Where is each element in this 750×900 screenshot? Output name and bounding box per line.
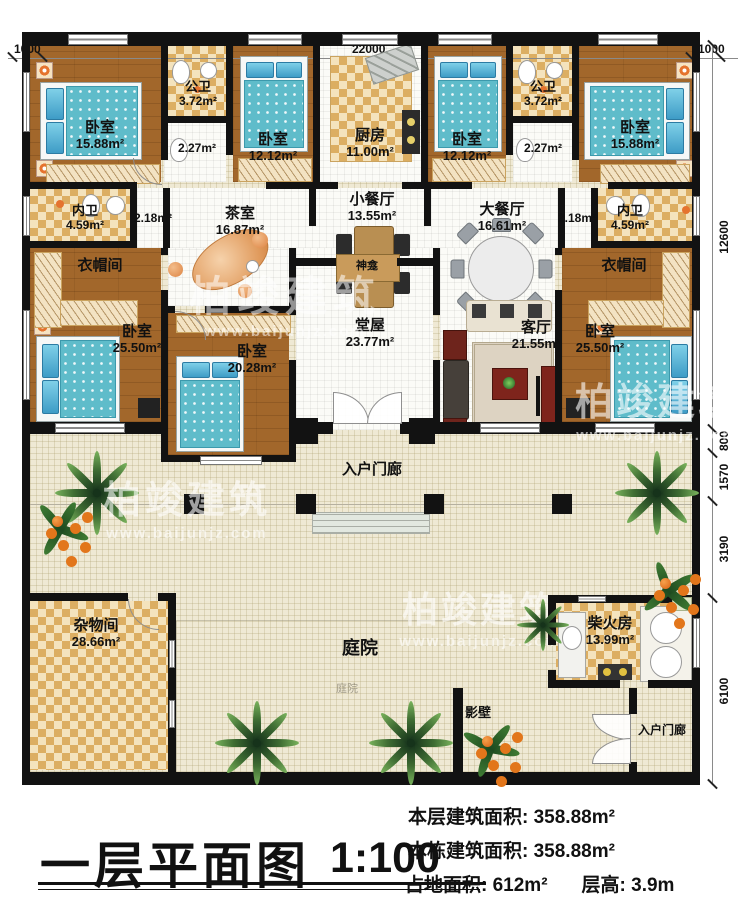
room-label-hall-l: 2.18m²: [134, 212, 172, 225]
closet-rack: [34, 252, 62, 328]
wall: [266, 182, 313, 189]
room-label-tea: 茶室16.87m²: [216, 206, 264, 237]
room-label-living: 客厅21.55m²: [512, 320, 560, 351]
burner: [603, 668, 611, 676]
dimension-value: 12600: [717, 207, 731, 267]
pillow: [666, 88, 684, 120]
sofa-pillow: [528, 304, 542, 318]
room-label-kitchen: 厨房11.00m²: [346, 128, 394, 159]
room-label-hall-r: 2.18m²: [558, 212, 596, 225]
window: [598, 34, 658, 45]
wall: [648, 680, 692, 688]
plant-pot: [503, 377, 515, 389]
info-line-2: 本栋建筑面积: 358.88m²: [408, 836, 615, 863]
closet-rack: [600, 164, 690, 184]
wall: [30, 182, 137, 189]
wall: [168, 593, 176, 772]
room-label-bath-tr: 公卫3.72m²: [524, 80, 562, 108]
window: [169, 640, 175, 668]
room-label-bedroom-tr2: 卧室12.12m²: [443, 132, 491, 163]
tea-stool: [168, 262, 183, 277]
room-label-cloak-l: 衣帽间: [77, 258, 122, 275]
window: [200, 456, 262, 465]
basin: [650, 646, 682, 678]
chair: [394, 234, 410, 256]
window: [169, 700, 175, 728]
wall: [313, 46, 320, 189]
wall: [22, 593, 128, 601]
room-label-bedroom-tl: 卧室15.88m²: [76, 120, 124, 151]
fruit-shrub: [630, 552, 706, 628]
tea-table: [246, 260, 259, 273]
pillow: [440, 62, 468, 78]
room-label-bedroom-tl2: 卧室12.12m²: [249, 132, 297, 163]
sink: [106, 196, 125, 215]
dimension-value: 1570: [717, 447, 731, 507]
info-line-3: 占地面积: 612m²层高: 3.9m: [405, 870, 674, 897]
wall: [313, 182, 338, 189]
window: [342, 34, 398, 45]
room-label-shrine: 神龛: [356, 260, 378, 272]
wall: [296, 258, 336, 266]
wall: [309, 188, 316, 226]
wall: [428, 182, 472, 189]
wall: [608, 182, 692, 189]
porch-post: [552, 494, 572, 514]
porch-pillar: [292, 418, 318, 444]
porch-pillar: [409, 418, 435, 444]
room-label-courtyard: 庭院: [342, 638, 378, 658]
pillow: [42, 380, 59, 414]
towel-ring: [56, 200, 64, 208]
chair: [451, 260, 465, 279]
tv: [536, 376, 540, 416]
wall: [397, 258, 433, 266]
wall: [591, 241, 692, 248]
room-label-dining-large: 大餐厅16.61m²: [478, 202, 526, 233]
pillow: [246, 62, 274, 78]
window: [438, 34, 492, 45]
sofa: [443, 360, 469, 420]
drawing-title: 一层平面图: [40, 826, 310, 898]
porch-post: [424, 494, 444, 514]
wall: [30, 241, 137, 248]
pillow: [42, 344, 59, 378]
palm-plant: [366, 698, 456, 788]
window: [23, 72, 30, 132]
window: [23, 196, 30, 236]
wall: [548, 680, 620, 688]
wall: [506, 116, 579, 123]
wall: [22, 32, 30, 785]
pillow: [470, 62, 496, 78]
room-label-firewood: 柴火房13.99m²: [586, 616, 634, 647]
watermark: 柏竣建筑www.baijunjz.com: [552, 384, 750, 443]
duvet: [180, 380, 240, 448]
window: [23, 310, 30, 400]
window: [693, 72, 700, 132]
wall: [161, 116, 233, 123]
window: [55, 423, 125, 433]
wall: [555, 248, 562, 255]
watermark: 柏竣建筑www.baijunjz.com: [120, 276, 450, 339]
room-label-ensuite-l: 内卫4.59m²: [66, 204, 104, 232]
burner: [407, 136, 415, 144]
palm-plant: [212, 698, 302, 788]
chair: [336, 234, 352, 256]
burner: [619, 668, 627, 676]
pillow: [46, 122, 64, 154]
burner: [407, 118, 415, 126]
pillow: [666, 122, 684, 154]
palm-plant: [515, 597, 571, 653]
pillow: [46, 88, 64, 120]
window: [480, 423, 540, 433]
sink: [200, 62, 217, 79]
room-label-storage: 杂物间28.66m²: [72, 618, 120, 649]
wall: [22, 772, 700, 785]
wall: [289, 360, 296, 462]
bedside-lamp: [36, 62, 53, 79]
room-label-bedroom-tr: 卧室15.88m²: [611, 120, 659, 151]
wall: [572, 46, 579, 160]
window: [578, 596, 606, 602]
dining-table-round: [468, 236, 534, 302]
room-label-porch-br: 入户门廊: [638, 724, 686, 737]
wall: [629, 688, 637, 714]
fruit-shrub: [452, 710, 528, 786]
sink: [546, 62, 563, 79]
dimension-value: 3190: [717, 519, 731, 579]
window: [248, 34, 302, 45]
towel-ring: [682, 206, 690, 214]
room-label-cloak-r: 衣帽间: [601, 258, 646, 275]
stove: [402, 110, 420, 154]
wall: [506, 46, 513, 155]
window: [68, 34, 128, 45]
courtyard-ghost-label: 庭院: [336, 680, 358, 696]
sofa-pillow: [500, 304, 514, 318]
bedside-lamp: [676, 62, 693, 79]
room-label-corridor-tr: 2.27m²: [524, 142, 562, 155]
room-label-bedroom-mr: 卧室25.50m²: [576, 324, 624, 355]
info-line-1: 本层建筑面积: 358.88m²: [408, 802, 615, 829]
wall: [161, 46, 168, 160]
pillow: [276, 62, 302, 78]
watermark: 柏竣建筑www.baijunjz.com: [62, 482, 312, 541]
room-label-bath-tl: 公卫3.72m²: [179, 80, 217, 108]
wall: [161, 248, 168, 255]
window: [693, 196, 700, 236]
duvet: [60, 340, 116, 418]
wall: [226, 46, 233, 155]
room-label-corridor-tl: 2.27m²: [178, 142, 216, 155]
pillow: [671, 344, 688, 378]
room-label-porch: 入户门廊: [342, 462, 402, 479]
wall: [421, 46, 428, 189]
chair: [539, 260, 553, 279]
sofa-pillow: [472, 304, 486, 318]
dresser: [138, 398, 160, 418]
wall: [424, 188, 431, 226]
room-label-bedroom-c: 卧室20.28m²: [228, 344, 276, 375]
pillow: [182, 362, 210, 378]
palm-plant: [612, 448, 702, 538]
room-label-ensuite-r: 内卫4.59m²: [611, 204, 649, 232]
room-label-dining-small: 小餐厅13.55m²: [348, 192, 396, 223]
dimension-value: 6100: [717, 661, 731, 721]
floor-plan: 卧室15.88m² 公卫3.72m² 2.27m² 卧室12.12m² 厨房11…: [0, 0, 750, 900]
entry-steps: [312, 512, 430, 534]
closet-rack: [662, 252, 690, 328]
